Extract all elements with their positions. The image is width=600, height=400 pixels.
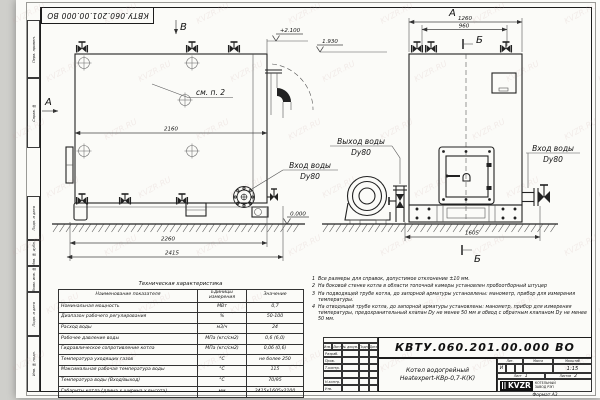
svg-text:KVZR.RU: KVZR.RU — [321, 59, 357, 84]
door-swing-arc — [272, 64, 313, 110]
svg-text:KVZR.RU: KVZR.RU — [11, 233, 47, 258]
table-row: Габариты котла (длина х ширина х высота)… — [59, 387, 304, 398]
ground-hatch-side — [53, 225, 299, 233]
note-item: 3На подводящей трубе котла, до запорной … — [305, 292, 590, 304]
title-block-doc-number: КВТУ.060.201.00.000 ВО — [378, 337, 592, 358]
svg-text:KVZR.RU: KVZR.RU — [505, 175, 541, 200]
elevation-mark-flue: 1.930 — [317, 39, 388, 52]
tech-table-title: Техническая характеристика — [58, 281, 303, 287]
svg-text:KVZR.RU: KVZR.RU — [287, 117, 323, 142]
outlet-pipe-valve — [389, 186, 407, 222]
sheet-cell: Лист1 — [497, 373, 545, 379]
svg-text:KVZR.RU: KVZR.RU — [287, 1, 323, 26]
svg-text:Б: Б — [474, 254, 481, 265]
dim-1605: 1605 — [465, 231, 479, 237]
valve-icon — [426, 42, 437, 53]
base-front — [409, 205, 522, 222]
svg-text:KVZR.RU: KVZR.RU — [287, 233, 323, 258]
svg-text:KVZR.RU: KVZR.RU — [11, 349, 47, 374]
view-arrow-A: А — [44, 97, 52, 108]
svg-text:KVZR.RU: KVZR.RU — [11, 1, 47, 26]
svg-text:KVZR.RU: KVZR.RU — [563, 1, 599, 26]
svg-text:KVZR.RU: KVZR.RU — [413, 175, 449, 200]
target-cross-icon — [178, 93, 193, 108]
svg-text:KVZR.RU: KVZR.RU — [505, 59, 541, 84]
elevation-mark-zero: 0.000 — [284, 212, 310, 225]
technical-characteristics: Техническая характеристика Наименование … — [58, 281, 303, 398]
dim-2415: 2415 — [165, 251, 179, 257]
kvzr-logo-icon — [502, 382, 507, 389]
svg-text:Dу80: Dу80 — [543, 155, 563, 164]
valve-icon — [187, 42, 198, 53]
svg-text:KVZR.RU: KVZR.RU — [195, 233, 231, 258]
col-header-value: Значение — [247, 290, 304, 303]
svg-text:KVZR.RU: KVZR.RU — [413, 59, 449, 84]
kvzr-logo: KVZR — [500, 381, 533, 391]
svg-text:KVZR.RU: KVZR.RU — [195, 1, 231, 26]
svg-text:KVZR.RU: KVZR.RU — [229, 59, 265, 84]
table-row: Температура уходящих газов°Сне более 250 — [59, 355, 304, 366]
svg-text:KVZR.RU: KVZR.RU — [103, 1, 139, 26]
svg-text:KVZR.RU: KVZR.RU — [137, 59, 173, 84]
target-cross-icon — [77, 56, 92, 71]
front-view-title: А — [448, 8, 456, 19]
table-row: Температура воды (Вход/выход)°С70/95 — [59, 376, 304, 387]
svg-text:KVZR.RU: KVZR.RU — [103, 233, 139, 258]
svg-text:Вход воды: Вход воды — [532, 144, 574, 153]
inlet-flange-icon — [234, 187, 255, 208]
company-name: КОТЕЛЬНЫЙ ЗАВОД РЭП — [535, 382, 565, 389]
note-item: 4На отводящей трубе котла, до запорной а… — [305, 305, 590, 323]
door-handle-icon — [463, 174, 470, 182]
table-row: Рабочее давление водыМПа (кгс/см2)0,6 (6… — [59, 334, 304, 345]
note-item: 1Все размеры для справок, допустимое отк… — [305, 277, 590, 283]
table-row: Расход водым3/ч24 — [59, 323, 304, 334]
svg-text:KVZR.RU: KVZR.RU — [471, 117, 507, 142]
flue-outlet — [265, 70, 291, 118]
svg-text:Dу80: Dу80 — [351, 148, 371, 157]
tech-table-header: Наименование показателя Единицы измерени… — [59, 290, 304, 303]
target-cross-icon — [185, 144, 200, 159]
format-label: Формат А3 — [505, 393, 585, 398]
dim-2160: 2160 — [164, 127, 178, 133]
drawing-sheet: { "sheet": { "doc_number": "КВТУ.060.201… — [0, 0, 600, 400]
target-cross-icon — [77, 144, 92, 159]
burner-fan — [345, 177, 390, 225]
callout-see-p2: см. п. 2 — [196, 88, 225, 97]
col-header-name: Наименование показателя — [59, 290, 198, 303]
dim-1260: 1260 — [458, 16, 472, 22]
side-drain-valve — [267, 189, 278, 201]
target-cross-icon — [185, 56, 200, 71]
mass-value — [523, 364, 553, 373]
svg-text:KVZR.RU: KVZR.RU — [321, 175, 357, 200]
furnace-door — [439, 147, 494, 204]
svg-text:0.000: 0.000 — [290, 212, 306, 218]
title-block-signatures: Изм. Лист № докум. Подп. Дата Разраб. Пр… — [323, 337, 378, 392]
valve-icon — [412, 42, 423, 53]
view-arrow-B: В — [180, 22, 187, 33]
title-block-header-row: Изм. Лист № докум. Подп. Дата — [323, 343, 378, 350]
company-cell: KVZR КОТЕЛЬНЫЙ ЗАВОД РЭП — [497, 379, 592, 392]
svg-text:1.930: 1.930 — [322, 39, 338, 45]
svg-text:KVZR.RU: KVZR.RU — [11, 117, 47, 142]
svg-text:+2.100: +2.100 — [280, 28, 301, 34]
dim-960: 960 — [459, 24, 470, 30]
tech-table: Наименование показателя Единицы измерени… — [58, 289, 304, 398]
svg-text:KVZR.RU: KVZR.RU — [103, 117, 139, 142]
sheets-cell: Листов2 — [545, 373, 593, 379]
svg-text:KVZR.RU: KVZR.RU — [195, 117, 231, 142]
table-row: Номинальная мощностьМВт0,7 — [59, 302, 304, 313]
scale-value: 1:15 — [553, 364, 592, 373]
svg-text:KVZR.RU: KVZR.RU — [563, 233, 599, 258]
table-row: Максимальная рабочая температура воды°С1… — [59, 366, 304, 377]
product-name: Котел водогрейный Heatexpert-КВр-0,7-К(К… — [378, 358, 497, 392]
front-view: А 1260 960 Б — [322, 8, 580, 265]
svg-text:KVZR.RU: KVZR.RU — [563, 117, 599, 142]
table-row: Гидравлическое сопротивление котлаМПа (к… — [59, 344, 304, 355]
svg-text:Dу80: Dу80 — [300, 172, 320, 181]
valve-icon — [229, 42, 240, 53]
note-item: 2На боковой стенке котла в области топоч… — [305, 284, 590, 290]
lit-value: И — [497, 364, 506, 373]
side-view: см. п. 2 2160 +2.100 — [42, 20, 387, 261]
title-block: Изм. Лист № докум. Подп. Дата Разраб. Пр… — [323, 337, 592, 392]
notes-list: 1Все размеры для справок, допустимое отк… — [305, 277, 590, 325]
svg-text:Б: Б — [476, 35, 483, 46]
svg-text:Вход воды: Вход воды — [289, 161, 331, 170]
valve-icon — [77, 42, 88, 53]
valve-icon — [501, 42, 512, 53]
section-mark-B-top: Б — [463, 35, 483, 49]
svg-text:Выход воды: Выход воды — [337, 137, 385, 146]
col-header-unit: Единицы измерения — [198, 290, 247, 303]
pump — [252, 207, 268, 217]
dim-2260: 2260 — [161, 237, 175, 243]
svg-text:KVZR.RU: KVZR.RU — [137, 175, 173, 200]
title-block-right-grid: Лит. Масса Масштаб И 1:15 Лист1 Листов2 … — [497, 358, 592, 392]
ground-hatch-front — [323, 225, 556, 233]
table-row: Диапазон рабочего регулирования%50-100 — [59, 313, 304, 324]
elevation-mark-top: +2.100 — [267, 28, 308, 54]
inlet-label-side: Вход воды Dу80 — [252, 161, 338, 189]
